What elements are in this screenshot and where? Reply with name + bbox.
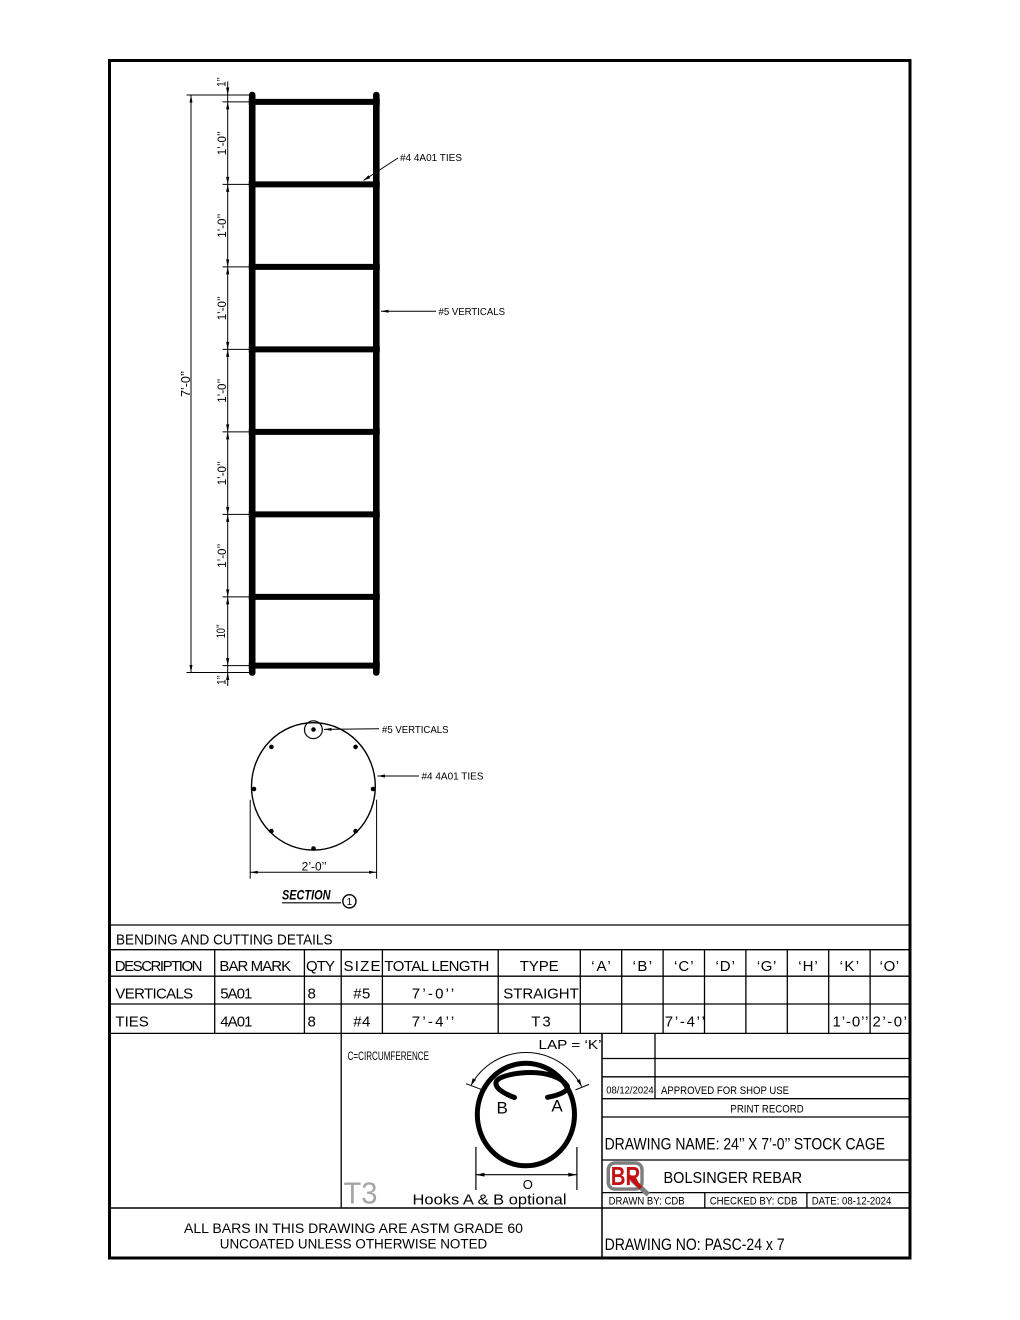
svg-text:Hooks A & B optional: Hooks A & B optional <box>413 1193 567 1209</box>
svg-text:1’-0’’: 1’-0’’ <box>217 461 229 485</box>
svg-text:BR: BR <box>611 1161 641 1191</box>
svg-text:DATE: 08-12-2024: DATE: 08-12-2024 <box>812 1196 892 1208</box>
svg-text:BOLSINGER REBAR: BOLSINGER REBAR <box>664 1170 803 1187</box>
svg-text:TYPE: TYPE <box>520 958 559 975</box>
svg-text:ALL BARS IN THIS DRAWING ARE A: ALL BARS IN THIS DRAWING ARE ASTM GRADE … <box>184 1221 523 1236</box>
svg-text:7’-0’’: 7’-0’’ <box>179 371 193 397</box>
svg-text:‘A’: ‘A’ <box>591 958 611 975</box>
svg-text:7’-0’’: 7’-0’’ <box>412 986 454 1003</box>
svg-text:UNCOATED UNLESS OTHERWISE NOTE: UNCOATED UNLESS OTHERWISE NOTED <box>220 1237 488 1252</box>
svg-text:‘C’: ‘C’ <box>674 958 694 975</box>
svg-text:08/12/2024: 08/12/2024 <box>606 1085 654 1097</box>
svg-text:C=CIRCUMFERENCE: C=CIRCUMFERENCE <box>348 1051 430 1063</box>
svg-text:‘H’: ‘H’ <box>798 958 818 975</box>
svg-text:10’’: 10’’ <box>216 624 228 638</box>
svg-text:QTY: QTY <box>306 958 335 975</box>
svg-text:APPROVED FOR SHOP USE: APPROVED FOR SHOP USE <box>661 1085 789 1097</box>
svg-text:‘G’: ‘G’ <box>757 958 777 975</box>
svg-text:DRAWN BY: CDB: DRAWN BY: CDB <box>609 1196 685 1208</box>
svg-text:7’-4’’: 7’-4’’ <box>665 1014 705 1031</box>
svg-text:1’-0’’: 1’-0’’ <box>217 379 229 403</box>
svg-text:DRAWING NAME: 24’’ X 7’-0’’ ST: DRAWING NAME: 24’’ X 7’-0’’ STOCK CAGE <box>605 1135 885 1154</box>
svg-text:#4 4A01 TIES: #4 4A01 TIES <box>400 152 462 164</box>
svg-text:T3: T3 <box>531 1014 550 1031</box>
svg-text:LAP = ‘K’: LAP = ‘K’ <box>539 1037 602 1052</box>
svg-text:STRAIGHT: STRAIGHT <box>503 986 579 1003</box>
svg-text:B: B <box>497 1099 508 1118</box>
svg-text:#4 4A01 TIES: #4 4A01 TIES <box>422 771 484 783</box>
svg-text:2’-0’’: 2’-0’’ <box>302 861 327 873</box>
svg-text:1: 1 <box>347 897 353 908</box>
svg-text:A: A <box>551 1097 563 1116</box>
svg-text:1’’: 1’’ <box>217 77 229 87</box>
svg-text:5A01: 5A01 <box>220 986 252 1003</box>
svg-text:2’-0’’: 2’-0’’ <box>873 1014 912 1031</box>
svg-text:#5: #5 <box>353 986 370 1003</box>
svg-text:‘B’: ‘B’ <box>633 958 653 975</box>
svg-text:1’-0’’: 1’-0’’ <box>217 544 229 568</box>
svg-text:‘O’: ‘O’ <box>880 958 900 975</box>
svg-text:DESCRIPTION: DESCRIPTION <box>115 958 203 975</box>
svg-text:O: O <box>523 1177 533 1192</box>
svg-text:CHECKED BY: CDB: CHECKED BY: CDB <box>710 1196 798 1208</box>
svg-text:BAR MARK: BAR MARK <box>219 958 291 975</box>
svg-text:DRAWING NO: PASC-24 x 7: DRAWING NO: PASC-24 x 7 <box>605 1235 785 1254</box>
svg-text:TOTAL LENGTH: TOTAL LENGTH <box>384 958 489 975</box>
svg-text:#4: #4 <box>353 1014 370 1031</box>
svg-text:‘D’: ‘D’ <box>715 958 735 975</box>
svg-text:VERTICALS: VERTICALS <box>115 986 193 1003</box>
svg-text:4A01: 4A01 <box>220 1014 252 1031</box>
svg-text:8: 8 <box>308 1014 316 1031</box>
svg-text:8: 8 <box>308 986 316 1003</box>
svg-text:1’-0’’: 1’-0’’ <box>833 1014 869 1031</box>
svg-text:#5 VERTICALS: #5 VERTICALS <box>439 306 506 318</box>
svg-text:#5 VERTICALS: #5 VERTICALS <box>382 724 449 736</box>
svg-text:SECTION: SECTION <box>282 888 331 903</box>
svg-text:‘K’: ‘K’ <box>840 958 860 975</box>
svg-text:1’-0’’: 1’-0’’ <box>217 131 229 155</box>
svg-text:1’-0’’: 1’-0’’ <box>217 296 229 320</box>
svg-text:BENDING AND CUTTING DETAILS: BENDING AND CUTTING DETAILS <box>116 931 333 948</box>
svg-text:T3: T3 <box>344 1175 378 1210</box>
svg-text:TIES: TIES <box>115 1014 148 1031</box>
svg-text:1’’: 1’’ <box>217 675 229 685</box>
svg-text:1’-0’’: 1’-0’’ <box>217 214 229 238</box>
svg-text:7’-4’’: 7’-4’’ <box>412 1014 454 1031</box>
svg-text:PRINT RECORD: PRINT RECORD <box>730 1104 803 1116</box>
svg-text:SIZE: SIZE <box>344 958 381 975</box>
